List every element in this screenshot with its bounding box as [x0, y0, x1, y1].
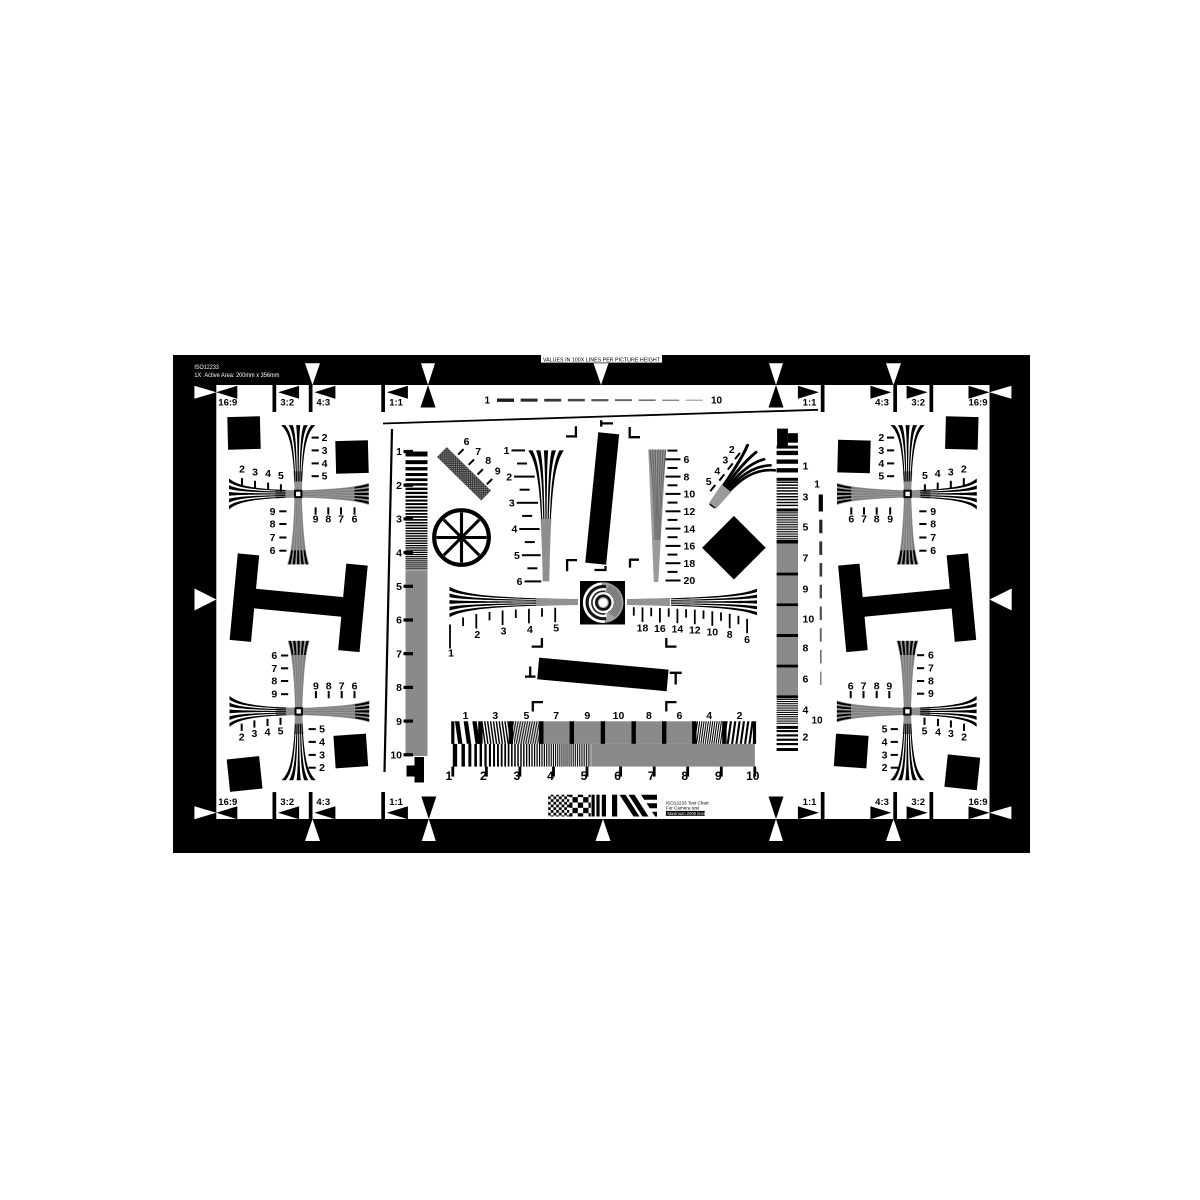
svg-text:4: 4 [882, 736, 888, 748]
svg-text:9: 9 [495, 466, 501, 478]
svg-text:8: 8 [684, 471, 690, 483]
svg-text:5: 5 [922, 470, 928, 482]
svg-text:3: 3 [878, 445, 884, 457]
svg-text:2: 2 [803, 732, 809, 744]
svg-text:10: 10 [746, 769, 760, 783]
svg-text:5: 5 [581, 769, 588, 783]
svg-text:4: 4 [396, 547, 402, 559]
svg-text:8: 8 [485, 455, 491, 467]
svg-text:16:9: 16:9 [968, 797, 987, 808]
svg-text:1X Active Area: 200mm x 356mm: 1X Active Area: 200mm x 356mm [194, 372, 279, 379]
svg-text:4: 4 [265, 727, 271, 739]
svg-text:7: 7 [930, 532, 936, 544]
svg-text:8: 8 [803, 643, 809, 655]
svg-text:8: 8 [874, 681, 880, 693]
svg-text:9: 9 [584, 710, 590, 722]
svg-text:6: 6 [396, 615, 402, 627]
svg-text:10: 10 [711, 396, 723, 407]
svg-text:14: 14 [684, 523, 696, 535]
svg-text:9: 9 [313, 514, 319, 526]
svg-text:2: 2 [961, 464, 967, 476]
svg-text:7: 7 [928, 663, 934, 675]
svg-text:8: 8 [874, 514, 880, 526]
svg-text:7: 7 [270, 532, 276, 544]
svg-text:3:2: 3:2 [280, 398, 294, 409]
svg-text:18: 18 [637, 622, 649, 634]
svg-text:3: 3 [501, 626, 507, 638]
svg-text:3: 3 [492, 710, 498, 722]
svg-text:1: 1 [396, 446, 402, 458]
svg-text:6: 6 [270, 545, 276, 557]
svg-text:5: 5 [803, 522, 809, 534]
svg-text:2: 2 [396, 480, 402, 492]
svg-text:7: 7 [553, 710, 559, 722]
svg-text:6: 6 [848, 514, 854, 526]
svg-text:8: 8 [325, 514, 331, 526]
svg-text:2: 2 [878, 432, 884, 444]
svg-text:1:1: 1:1 [389, 797, 403, 808]
svg-text:7: 7 [861, 681, 867, 693]
svg-text:4: 4 [803, 705, 809, 717]
svg-text:4:3: 4:3 [875, 398, 889, 409]
svg-text:6: 6 [676, 710, 682, 722]
svg-text:2: 2 [239, 731, 245, 743]
svg-text:8: 8 [681, 769, 688, 783]
svg-text:8: 8 [930, 519, 936, 531]
svg-text:3: 3 [322, 445, 328, 457]
svg-text:16: 16 [654, 623, 666, 635]
svg-text:4: 4 [547, 769, 554, 783]
svg-text:18: 18 [684, 558, 696, 570]
svg-text:4: 4 [527, 624, 533, 636]
svg-text:4: 4 [322, 458, 328, 470]
svg-text:3: 3 [251, 728, 257, 740]
svg-text:2: 2 [961, 731, 967, 743]
svg-text:5: 5 [278, 470, 284, 482]
svg-text:6: 6 [352, 681, 358, 693]
svg-text:8: 8 [727, 629, 733, 641]
svg-text:9: 9 [271, 689, 277, 701]
svg-text:20: 20 [684, 575, 696, 587]
svg-text:7: 7 [648, 769, 655, 783]
svg-text:4: 4 [511, 524, 517, 536]
svg-text:2: 2 [474, 629, 480, 641]
svg-text:5: 5 [396, 581, 402, 593]
svg-text:12: 12 [684, 506, 696, 518]
svg-text:3: 3 [252, 466, 258, 478]
svg-text:2: 2 [506, 471, 512, 483]
svg-text:9: 9 [887, 514, 893, 526]
svg-text:5: 5 [878, 471, 884, 483]
svg-text:5: 5 [706, 476, 712, 488]
svg-text:10: 10 [803, 614, 815, 626]
svg-text:1: 1 [448, 648, 454, 660]
svg-text:3:2: 3:2 [911, 398, 925, 409]
svg-text:3: 3 [948, 466, 954, 478]
svg-text:3: 3 [396, 514, 402, 526]
svg-text:9: 9 [270, 506, 276, 518]
svg-text:3: 3 [722, 455, 728, 467]
svg-text:For Camera test: For Camera test [666, 805, 700, 810]
svg-text:9: 9 [928, 688, 934, 700]
svg-text:6: 6 [930, 545, 936, 557]
svg-text:2: 2 [737, 710, 743, 722]
svg-text:9: 9 [930, 506, 936, 518]
svg-text:4: 4 [319, 736, 325, 748]
svg-text:2: 2 [882, 762, 888, 774]
svg-text:6: 6 [744, 634, 750, 646]
svg-text:5: 5 [882, 724, 888, 736]
svg-text:6: 6 [848, 681, 854, 693]
svg-text:4: 4 [935, 468, 941, 480]
svg-text:16:9: 16:9 [218, 797, 237, 808]
svg-text:2: 2 [239, 464, 245, 476]
svg-text:4: 4 [706, 710, 712, 722]
svg-text:9: 9 [886, 681, 892, 693]
svg-text:5: 5 [319, 724, 325, 736]
svg-text:6: 6 [517, 576, 523, 588]
svg-text:2: 2 [319, 762, 325, 774]
svg-text:7: 7 [475, 446, 481, 458]
svg-text:5: 5 [922, 725, 928, 737]
svg-text:5: 5 [553, 623, 559, 635]
svg-text:9: 9 [396, 716, 402, 728]
svg-text:3: 3 [803, 492, 809, 504]
svg-text:ISO12233: ISO12233 [194, 364, 219, 371]
svg-text:6: 6 [352, 514, 358, 526]
svg-text:4:3: 4:3 [316, 398, 330, 409]
svg-text:2: 2 [480, 769, 487, 783]
svg-text:7: 7 [803, 553, 809, 565]
svg-text:8: 8 [396, 682, 402, 694]
svg-text:16:9: 16:9 [968, 398, 987, 409]
svg-text:14: 14 [672, 624, 684, 636]
svg-text:VALUES IN 100X LINES PER PICTU: VALUES IN 100X LINES PER PICTURE HEIGHT [543, 357, 661, 363]
svg-text:6: 6 [271, 650, 277, 662]
svg-text:6: 6 [684, 454, 690, 466]
svg-text:6: 6 [928, 650, 934, 662]
svg-text:6: 6 [803, 674, 809, 686]
svg-text:4: 4 [714, 465, 720, 477]
svg-text:6: 6 [614, 769, 621, 783]
svg-text:2: 2 [729, 444, 735, 456]
svg-text:1: 1 [803, 461, 809, 473]
svg-text:16:9: 16:9 [218, 398, 237, 409]
svg-text:4: 4 [265, 468, 271, 480]
svg-text:10: 10 [684, 489, 696, 501]
svg-text:5: 5 [514, 550, 520, 562]
svg-text:7: 7 [271, 663, 277, 675]
svg-text:3: 3 [948, 728, 954, 740]
svg-text:4: 4 [878, 458, 884, 470]
svg-text:9: 9 [715, 769, 722, 783]
svg-text:8: 8 [270, 519, 276, 531]
svg-text:5: 5 [322, 471, 328, 483]
svg-text:3: 3 [882, 749, 888, 761]
svg-text:7: 7 [396, 648, 402, 660]
svg-text:16: 16 [684, 541, 696, 553]
svg-text:8: 8 [271, 676, 277, 688]
svg-text:8: 8 [326, 681, 332, 693]
svg-text:7: 7 [861, 514, 867, 526]
svg-text:5: 5 [523, 710, 529, 722]
svg-text:12: 12 [689, 625, 701, 637]
svg-text:10: 10 [706, 626, 718, 638]
svg-text:4: 4 [935, 727, 941, 739]
svg-text:1: 1 [445, 769, 452, 783]
svg-text:7: 7 [339, 681, 345, 693]
svg-text:2: 2 [322, 432, 328, 444]
svg-text:1: 1 [814, 480, 820, 491]
svg-text:10: 10 [613, 710, 625, 722]
svg-text:3: 3 [514, 769, 521, 783]
svg-text:6: 6 [464, 436, 470, 448]
svg-text:3:2: 3:2 [911, 797, 925, 808]
svg-text:4:3: 4:3 [875, 797, 889, 808]
svg-text:1: 1 [463, 710, 469, 722]
svg-text:10: 10 [390, 750, 402, 762]
svg-text:1: 1 [504, 445, 510, 457]
svg-text:1:1: 1:1 [803, 797, 817, 808]
svg-text:1:1: 1:1 [389, 398, 403, 409]
svg-text:8: 8 [646, 710, 652, 722]
svg-text:8: 8 [928, 676, 934, 688]
svg-text:7: 7 [338, 514, 344, 526]
svg-text:3:2: 3:2 [280, 797, 294, 808]
svg-text:3: 3 [509, 498, 515, 510]
svg-text:9: 9 [803, 584, 809, 596]
svg-text:5: 5 [278, 725, 284, 737]
svg-text:4:3: 4:3 [316, 797, 330, 808]
svg-text:10: 10 [811, 716, 823, 727]
svg-text:1: 1 [484, 396, 490, 407]
svg-text:Maximum 2000 lines: Maximum 2000 lines [668, 811, 706, 816]
svg-text:9: 9 [313, 681, 319, 693]
svg-text:3: 3 [319, 749, 325, 761]
svg-text:1:1: 1:1 [803, 398, 817, 409]
